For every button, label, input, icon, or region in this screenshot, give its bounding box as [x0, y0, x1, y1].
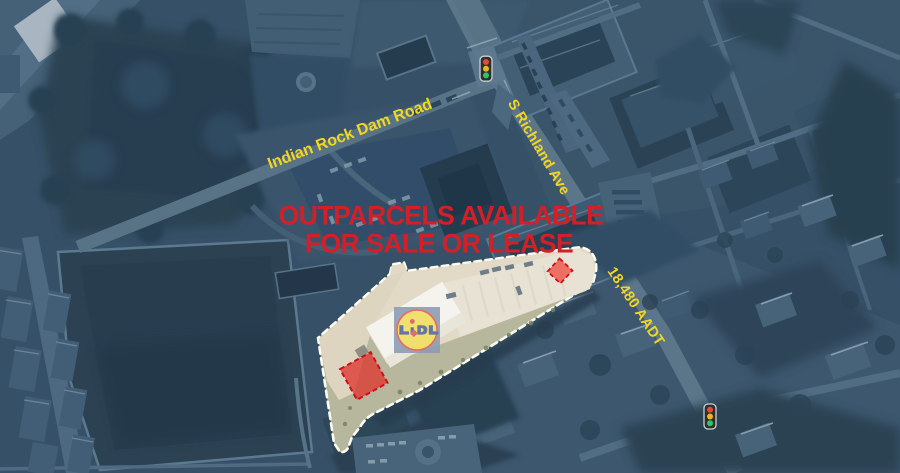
svg-text:FOR SALE OR LEASE: FOR SALE OR LEASE	[305, 229, 573, 259]
svg-text:OUTPARCELS AVAILABLE: OUTPARCELS AVAILABLE	[279, 201, 604, 231]
